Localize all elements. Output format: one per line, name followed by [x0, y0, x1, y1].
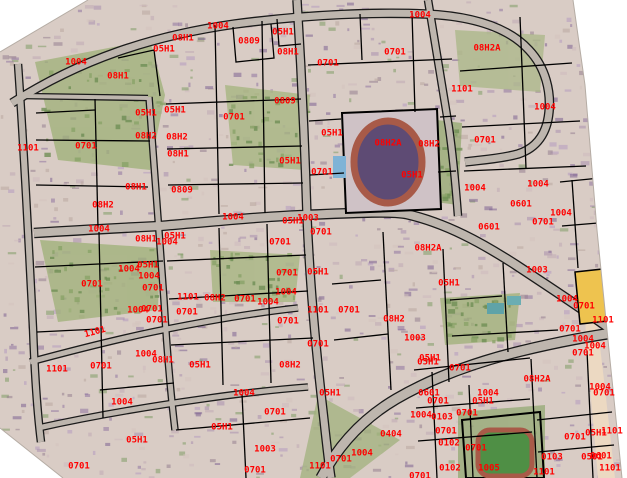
rooftop-texel [331, 317, 336, 320]
tree-texel [61, 295, 65, 300]
tree-texel [441, 166, 444, 169]
tree-texel [69, 86, 72, 89]
rooftop-texel [2, 225, 10, 227]
parcel-label: 08H2A [523, 375, 551, 385]
rooftop-texel [398, 228, 403, 230]
rooftop-texel [570, 243, 578, 245]
parcel-label: 08H1 [135, 235, 157, 245]
rooftop-texel [225, 310, 227, 314]
rooftop-texel [271, 442, 279, 444]
rooftop-texel [398, 246, 404, 248]
rooftop-texel [279, 437, 283, 439]
rooftop-texel [570, 24, 572, 27]
rooftop-texel [54, 36, 61, 39]
rooftop-texel [115, 394, 123, 397]
rooftop-texel [329, 398, 333, 402]
rooftop-texel [87, 19, 94, 22]
rooftop-texel [235, 412, 243, 414]
rooftop-texel [406, 446, 415, 449]
rooftop-texel [158, 379, 163, 382]
rooftop-texel [403, 104, 407, 107]
rooftop-texel [528, 389, 534, 391]
rooftop-texel [41, 148, 48, 150]
rooftop-texel [391, 349, 398, 353]
parcel-label: 0701 [449, 364, 471, 374]
rooftop-texel [486, 12, 491, 14]
rooftop-texel [517, 246, 523, 249]
rooftop-texel [118, 167, 124, 169]
rooftop-texel [510, 5, 518, 8]
rooftop-texel [560, 72, 567, 75]
rooftop-texel [419, 425, 422, 429]
rooftop-texel [478, 257, 485, 260]
rooftop-texel [230, 384, 239, 386]
rooftop-texel [195, 407, 200, 410]
parcel-label: 0701 [338, 306, 360, 316]
rooftop-texel [401, 331, 408, 333]
parcel-label: 0701 [244, 466, 266, 476]
rooftop-texel [88, 433, 92, 437]
parcel-label: 0701 [564, 433, 586, 443]
rooftop-texel [469, 199, 478, 202]
rooftop-texel [563, 29, 570, 33]
parcel-label: 08H2 [92, 201, 114, 211]
parcel-label: 1101 [307, 306, 329, 316]
tree-texel [105, 309, 108, 314]
rooftop-texel [21, 404, 26, 407]
rooftop-texel [355, 261, 361, 265]
rooftop-texel [537, 292, 542, 295]
rooftop-texel [465, 288, 471, 290]
rooftop-texel [265, 360, 272, 363]
rooftop-texel [181, 254, 184, 259]
parcel-label: 0701 [593, 389, 615, 399]
rooftop-texel [311, 161, 315, 164]
rooftop-texel [372, 28, 375, 31]
rooftop-texel [53, 217, 56, 220]
rooftop-texel [568, 284, 574, 287]
tree-texel [264, 117, 270, 121]
rooftop-texel [189, 464, 194, 467]
rooftop-texel [164, 172, 169, 177]
rooftop-texel [348, 83, 357, 85]
rooftop-texel [354, 43, 360, 45]
rooftop-texel [545, 253, 552, 255]
tree-texel [122, 116, 127, 121]
rooftop-texel [34, 204, 38, 208]
rooftop-texel [442, 217, 448, 220]
tree-texel [134, 121, 139, 124]
rooftop-texel [1, 187, 9, 190]
rooftop-texel [321, 186, 325, 188]
rooftop-texel [404, 380, 409, 383]
rooftop-texel [401, 230, 407, 234]
parcel-label: 0701 [264, 408, 286, 418]
rooftop-texel [85, 5, 94, 9]
rooftop-texel [513, 115, 517, 119]
rooftop-texel [185, 23, 188, 27]
rooftop-texel [132, 323, 139, 327]
rooftop-texel [279, 448, 288, 451]
rooftop-texel [423, 295, 432, 298]
tree-texel [226, 265, 230, 269]
rooftop-texel [472, 275, 475, 278]
rooftop-texel [198, 244, 203, 247]
rooftop-texel [433, 260, 438, 264]
parcel-label: 05H1 [319, 389, 341, 399]
rooftop-texel [481, 271, 489, 274]
rooftop-texel [93, 451, 96, 455]
rooftop-texel [163, 125, 169, 128]
tree-texel [295, 133, 298, 137]
rooftop-texel [394, 251, 401, 254]
rooftop-texel [557, 255, 559, 258]
rooftop-texel [189, 145, 194, 148]
rooftop-texel [60, 29, 64, 33]
parcel-label: 08H2 [383, 315, 405, 325]
rooftop-texel [333, 94, 336, 98]
rooftop-texel [94, 6, 102, 10]
parcel-label: 05H1 [472, 397, 494, 407]
rooftop-texel [575, 400, 580, 405]
rooftop-texel [62, 405, 64, 408]
cadastral-map-canvas[interactable]: 100408H105H108H11004080905H108H107011004… [0, 0, 627, 478]
tree-texel [99, 290, 103, 292]
rooftop-texel [415, 318, 421, 322]
rooftop-texel [175, 345, 184, 347]
rooftop-texel [454, 267, 461, 269]
rooftop-texel [39, 161, 46, 163]
rooftop-texel [14, 326, 18, 328]
rooftop-texel [174, 349, 179, 352]
parcel-label: 1101 [17, 144, 39, 154]
parcel-label: 0701 [146, 316, 168, 326]
rooftop-texel [182, 211, 188, 215]
rooftop-texel [408, 221, 411, 223]
tree-texel [233, 130, 236, 134]
tree-texel [448, 309, 455, 314]
parcel-label: 0701 [317, 59, 339, 69]
rooftop-texel [131, 28, 137, 30]
parcel-label: 05H1 [135, 109, 157, 119]
parcel-label: 08H1 [107, 72, 129, 82]
rooftop-texel [78, 10, 82, 13]
tree-texel [87, 80, 89, 82]
tree-texel [105, 277, 107, 280]
rooftop-texel [4, 349, 7, 354]
rooftop-texel [138, 395, 147, 398]
rooftop-texel [379, 43, 381, 45]
tree-texel [253, 281, 256, 285]
rooftop-texel [140, 5, 148, 7]
rooftop-texel [209, 242, 213, 244]
tree-texel [89, 73, 92, 78]
rooftop-texel [456, 100, 464, 103]
rooftop-texel [428, 70, 434, 74]
parcel-label: 0701 [142, 284, 164, 294]
parcel-label: 1101 [309, 462, 331, 472]
rooftop-texel [188, 83, 190, 88]
rooftop-texel [19, 351, 25, 354]
rooftop-texel [258, 415, 262, 419]
rooftop-texel [555, 35, 560, 39]
parcel-label: 1004 [275, 288, 297, 298]
rooftop-texel [167, 465, 171, 469]
rooftop-texel [51, 410, 59, 412]
rooftop-texel [564, 315, 570, 319]
rooftop-texel [360, 333, 364, 335]
rooftop-texel [50, 178, 52, 182]
tree-texel [246, 141, 252, 144]
rooftop-texel [580, 86, 582, 90]
rooftop-texel [428, 343, 434, 346]
rooftop-texel [103, 212, 112, 215]
rooftop-texel [54, 207, 58, 211]
rooftop-texel [145, 416, 153, 418]
rooftop-texel [306, 35, 313, 37]
parcel-label: 1005 [478, 464, 500, 474]
rooftop-texel [190, 77, 192, 79]
parcel-label: 0701 [384, 48, 406, 58]
tree-texel [471, 302, 474, 307]
rooftop-texel [512, 275, 514, 277]
rooftop-texel [173, 161, 175, 163]
parcel-label: 0102 [439, 464, 461, 474]
rooftop-texel [567, 18, 572, 22]
tree-texel [452, 323, 457, 325]
rooftop-texel [178, 23, 182, 27]
rooftop-texel [309, 103, 316, 106]
tree-texel [51, 290, 57, 292]
rooftop-texel [546, 277, 548, 279]
tree-texel [95, 78, 98, 83]
parcel-label: 08H2A [414, 244, 442, 254]
rooftop-texel [120, 388, 125, 392]
rooftop-texel [340, 275, 343, 279]
parcel-label: 05H1 [438, 279, 460, 289]
rooftop-texel [4, 313, 7, 316]
rooftop-texel [51, 199, 55, 203]
rooftop-texel [62, 393, 64, 396]
rooftop-texel [170, 55, 179, 58]
parcel-label: 1004 [222, 213, 244, 223]
rooftop-texel [191, 69, 193, 71]
parcel-label: 0701 [176, 308, 198, 318]
tree-texel [467, 302, 469, 306]
rooftop-texel [8, 189, 14, 193]
rooftop-texel [374, 245, 381, 249]
rooftop-texel [33, 177, 40, 182]
rooftop-texel [349, 285, 353, 288]
rooftop-texel [481, 148, 487, 152]
rooftop-texel [9, 346, 16, 350]
rooftop-texel [288, 335, 291, 339]
rooftop-texel [204, 178, 208, 181]
tree-texel [250, 126, 255, 129]
rooftop-texel [280, 454, 282, 456]
rooftop-texel [11, 344, 14, 346]
rooftop-texel [69, 217, 73, 221]
rooftop-texel [548, 251, 551, 253]
parcel-label: 1003 [404, 334, 426, 344]
parcel-label: 0701 [277, 317, 299, 327]
rooftop-texel [371, 52, 379, 56]
rooftop-texel [244, 246, 250, 249]
rooftop-texel [297, 444, 300, 448]
rooftop-texel [26, 45, 33, 49]
cadastral-map-viewport[interactable]: 100408H105H108H11004080905H108H107011004… [0, 0, 627, 478]
rooftop-texel [375, 79, 380, 81]
rooftop-texel [42, 453, 45, 456]
rooftop-texel [122, 234, 126, 237]
rooftop-texel [207, 110, 215, 114]
rooftop-texel [180, 62, 187, 65]
parcel-label: 05H1 [153, 45, 175, 55]
rooftop-texel [74, 355, 78, 358]
rooftop-texel [9, 303, 14, 306]
rooftop-texel [226, 135, 229, 138]
rooftop-texel [142, 11, 150, 15]
rooftop-texel [333, 262, 340, 265]
tree-texel [238, 274, 241, 277]
rooftop-texel [169, 266, 173, 269]
rooftop-texel [262, 323, 268, 325]
parcel-label: 0701 [234, 295, 256, 305]
rooftop-texel [509, 127, 512, 130]
rooftop-texel [228, 343, 234, 345]
tree-texel [122, 162, 129, 167]
tree-texel [64, 267, 67, 271]
rooftop-texel [370, 266, 374, 270]
rooftop-texel [115, 439, 123, 441]
rooftop-texel [411, 373, 417, 377]
rooftop-texel [43, 398, 48, 400]
tree-texel [234, 281, 239, 284]
rooftop-texel [240, 400, 247, 402]
tree-texel [75, 158, 81, 162]
rooftop-texel [444, 69, 448, 71]
rooftop-texel [235, 346, 237, 348]
rooftop-texel [369, 319, 377, 322]
rooftop-texel [115, 375, 118, 378]
tree-texel [50, 257, 54, 259]
rooftop-texel [39, 278, 47, 281]
rooftop-texel [318, 297, 322, 301]
rooftop-texel [42, 124, 46, 127]
rooftop-texel [355, 235, 358, 237]
rooftop-texel [324, 46, 328, 50]
rooftop-texel [427, 302, 432, 306]
rooftop-texel [492, 115, 496, 117]
parcel-label: 05H1 [137, 261, 159, 271]
rooftop-texel [333, 152, 338, 154]
rooftop-texel [464, 346, 472, 349]
parcel-label: 0701 [276, 269, 298, 279]
rooftop-texel [581, 161, 590, 165]
parcel-label: 1004 [527, 180, 549, 190]
rooftop-texel [405, 252, 414, 255]
rooftop-texel [392, 419, 398, 423]
tree-texel [85, 114, 90, 118]
parcel-label: 1101 [46, 365, 68, 375]
parcel-label: 0404 [380, 430, 402, 440]
rooftop-texel [57, 360, 60, 362]
rooftop-texel [575, 385, 581, 387]
rooftop-texel [67, 430, 72, 434]
rooftop-texel [194, 436, 200, 438]
rooftop-texel [462, 376, 471, 378]
rooftop-texel [555, 118, 563, 121]
parcel-label: 1101 [599, 464, 621, 474]
rooftop-texel [174, 255, 177, 257]
parcel-label: 0809 [171, 186, 193, 196]
rooftop-texel [327, 121, 329, 125]
rooftop-texel [590, 198, 593, 202]
rooftop-texel [52, 345, 61, 347]
tree-texel [447, 173, 451, 176]
rooftop-texel [35, 279, 37, 284]
rooftop-texel [265, 424, 269, 427]
rooftop-texel [213, 185, 218, 187]
rooftop-texel [232, 332, 236, 337]
tree-texel [259, 286, 265, 290]
rooftop-texel [499, 164, 503, 167]
rooftop-texel [393, 69, 396, 72]
rooftop-texel [13, 369, 15, 371]
rooftop-texel [562, 392, 566, 394]
rooftop-texel [361, 28, 370, 30]
rooftop-texel [559, 243, 562, 247]
rooftop-texel [458, 392, 463, 395]
rooftop-texel [307, 88, 309, 92]
rooftop-texel [521, 31, 523, 34]
rooftop-texel [50, 221, 59, 223]
rooftop-texel [327, 71, 335, 74]
rooftop-texel [319, 222, 325, 226]
rooftop-texel [148, 212, 153, 214]
rooftop-texel [205, 410, 214, 412]
rooftop-texel [105, 443, 110, 446]
rooftop-texel [405, 465, 414, 468]
rooftop-texel [482, 383, 489, 385]
rooftop-texel [174, 319, 179, 322]
tree-texel [116, 125, 121, 130]
rooftop-texel [443, 64, 449, 68]
parcel-label: 1004 [410, 411, 432, 421]
tree-texel [475, 299, 480, 303]
rooftop-texel [221, 227, 224, 229]
rooftop-texel [543, 360, 551, 364]
rooftop-texel [100, 471, 104, 475]
rooftop-texel [394, 413, 401, 415]
rooftop-texel [178, 338, 182, 340]
rooftop-texel [499, 9, 503, 12]
parcel-label: 08H1 [277, 48, 299, 58]
parcel-label: 0701 [474, 136, 496, 146]
tree-texel [231, 253, 233, 257]
parcel-label: 0701 [532, 218, 554, 228]
parcel-label: 1004 [257, 298, 279, 308]
rooftop-texel [255, 356, 261, 359]
rooftop-texel [350, 91, 358, 95]
rooftop-texel [515, 223, 521, 226]
parcel-label: 0103 [431, 413, 453, 423]
tree-texel [482, 339, 487, 343]
parcel-label: 05H1 [321, 129, 343, 139]
rooftop-texel [43, 414, 49, 418]
tree-texel [54, 270, 61, 273]
rooftop-texel [311, 6, 319, 8]
